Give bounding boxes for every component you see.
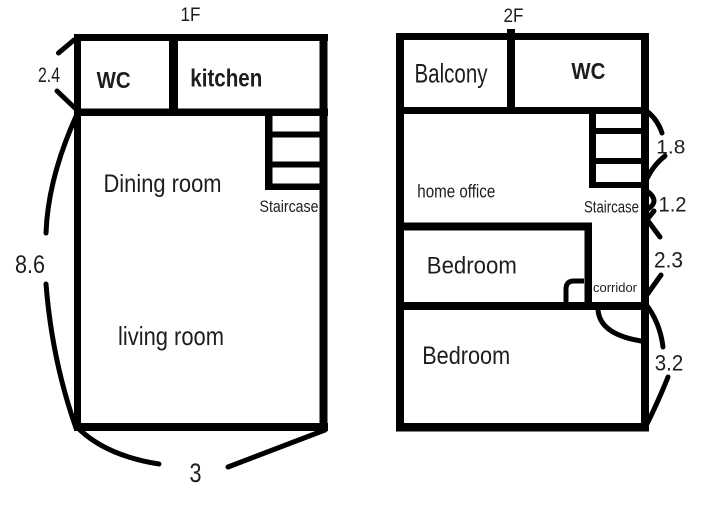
svg-text:8.6: 8.6 [15,251,45,279]
svg-text:Staircase: Staircase [584,198,639,217]
svg-text:Dining room: Dining room [104,170,222,198]
svg-text:Bedroom: Bedroom [422,342,510,370]
svg-text:2F: 2F [504,6,524,27]
svg-text:2.3: 2.3 [654,248,683,273]
svg-text:WC: WC [97,67,131,93]
svg-text:Staircase: Staircase [260,197,319,216]
svg-text:kitchen: kitchen [190,64,262,92]
svg-text:1F: 1F [181,5,201,26]
svg-text:Bedroom: Bedroom [427,253,517,280]
svg-text:1.2: 1.2 [659,194,687,217]
svg-text:home office: home office [417,182,495,202]
svg-text:3.2: 3.2 [655,351,684,376]
svg-text:3: 3 [190,458,202,488]
svg-text:living room: living room [118,321,224,351]
svg-text:1.8: 1.8 [656,137,685,159]
svg-text:corridor: corridor [593,280,638,295]
svg-text:2.4: 2.4 [38,64,60,87]
svg-text:Balcony: Balcony [415,59,488,89]
svg-text:WC: WC [571,58,605,84]
